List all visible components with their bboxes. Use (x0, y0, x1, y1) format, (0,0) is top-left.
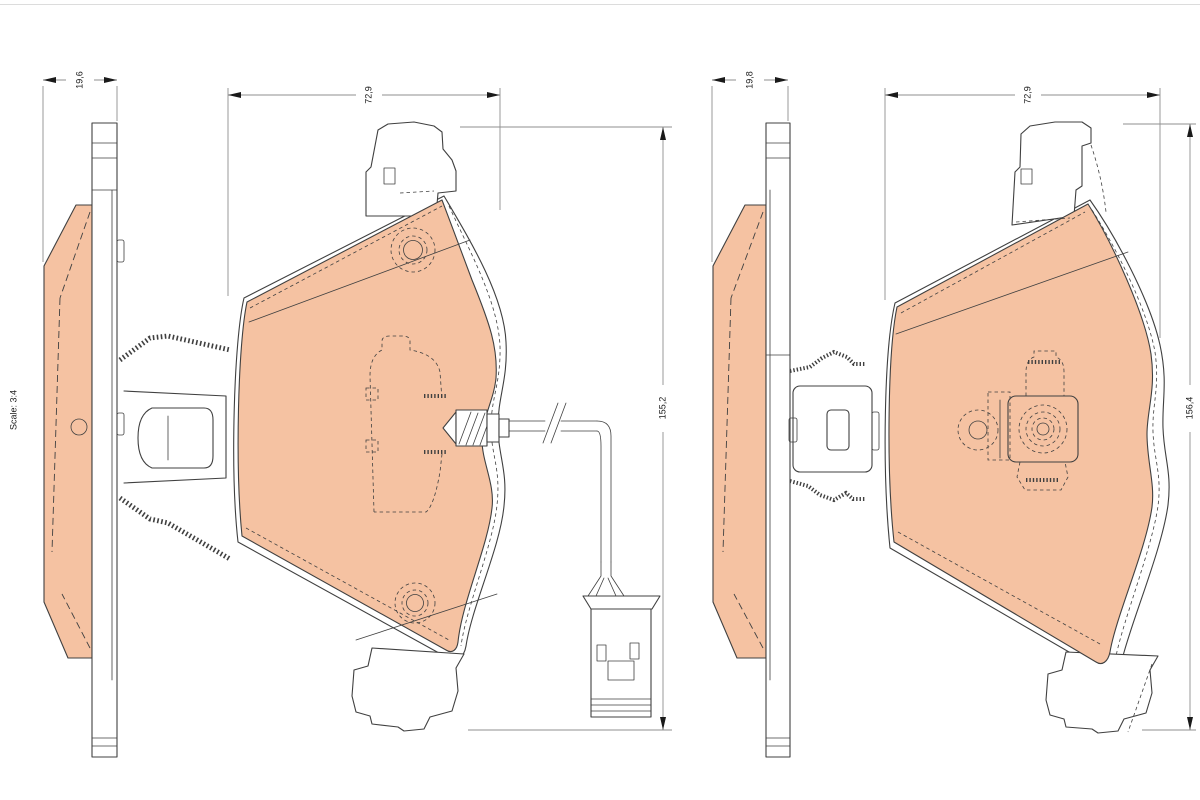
spring-arm-upper (790, 352, 866, 371)
friction-material-face (889, 204, 1153, 664)
pad-assembly-right: 19,8 72,9 156,4 (712, 71, 1196, 757)
arrowhead-left (228, 92, 241, 98)
scale-label: Scale: 3:4 (8, 390, 18, 430)
arrowhead-down (660, 717, 666, 730)
backplate-tab (117, 413, 124, 435)
retention-spring-clip (789, 352, 879, 500)
pad-assembly-left: 19,6 72,9 155,2 (43, 71, 672, 757)
clip-tab-right (872, 412, 879, 450)
dim-value: 19,8 (744, 71, 754, 89)
clip-bracket (793, 386, 872, 472)
arrowhead-right (1147, 92, 1160, 98)
arrowhead-up (660, 127, 666, 140)
connector (583, 596, 660, 717)
arrowhead-right (104, 77, 117, 83)
technical-drawing-page: 19,6 72,9 155,2 (0, 0, 1200, 800)
spring-arm-lower (120, 498, 230, 559)
wear-sensor-plug (443, 410, 509, 446)
arrowhead-up (1187, 124, 1193, 137)
pad-right-front-view (885, 122, 1169, 733)
wire-break-symbol (543, 403, 566, 443)
arrowhead-right (775, 77, 788, 83)
strain-relief (588, 562, 624, 596)
friction-material-side (713, 205, 766, 658)
retention-spring-clip (120, 336, 230, 559)
lead-wire (509, 421, 597, 431)
connector-body (591, 609, 651, 717)
lead-wire-bend (597, 421, 611, 562)
dim-value: 72,9 (1022, 86, 1032, 104)
brake-pad-set-drawing: 19,6 72,9 155,2 (0, 0, 1200, 800)
pad-left-side-view (44, 123, 230, 757)
arrowhead-left (885, 92, 898, 98)
dim-value: 155,2 (657, 397, 667, 420)
wear-indicator-lead (509, 403, 660, 717)
clip-bracket (124, 391, 226, 483)
arrowhead-down (1187, 717, 1193, 730)
lug-hidden-edge (1091, 145, 1106, 212)
dim-value: 72,9 (363, 86, 373, 104)
pad-right-side-view (713, 123, 879, 757)
backplate-lug-bottom (352, 648, 464, 731)
backplate-side (92, 123, 117, 757)
arrowhead-left (712, 77, 725, 83)
spring-arm-lower (790, 481, 866, 500)
dim-value: 156,4 (1184, 397, 1194, 420)
arrowhead-left (43, 77, 56, 83)
plug-step (487, 414, 499, 442)
clip-window (827, 410, 849, 450)
arrowhead-right (487, 92, 500, 98)
piston-cap (138, 408, 213, 468)
backplate-lug-bottom (1046, 652, 1158, 733)
pad-left-front-view (234, 122, 509, 731)
spring-arm-upper (120, 336, 230, 360)
plug-step (499, 419, 509, 437)
backplate-tab (117, 240, 124, 262)
friction-material-side (44, 205, 92, 658)
dim-value: 19,6 (74, 71, 84, 89)
connector-flange (583, 596, 660, 609)
